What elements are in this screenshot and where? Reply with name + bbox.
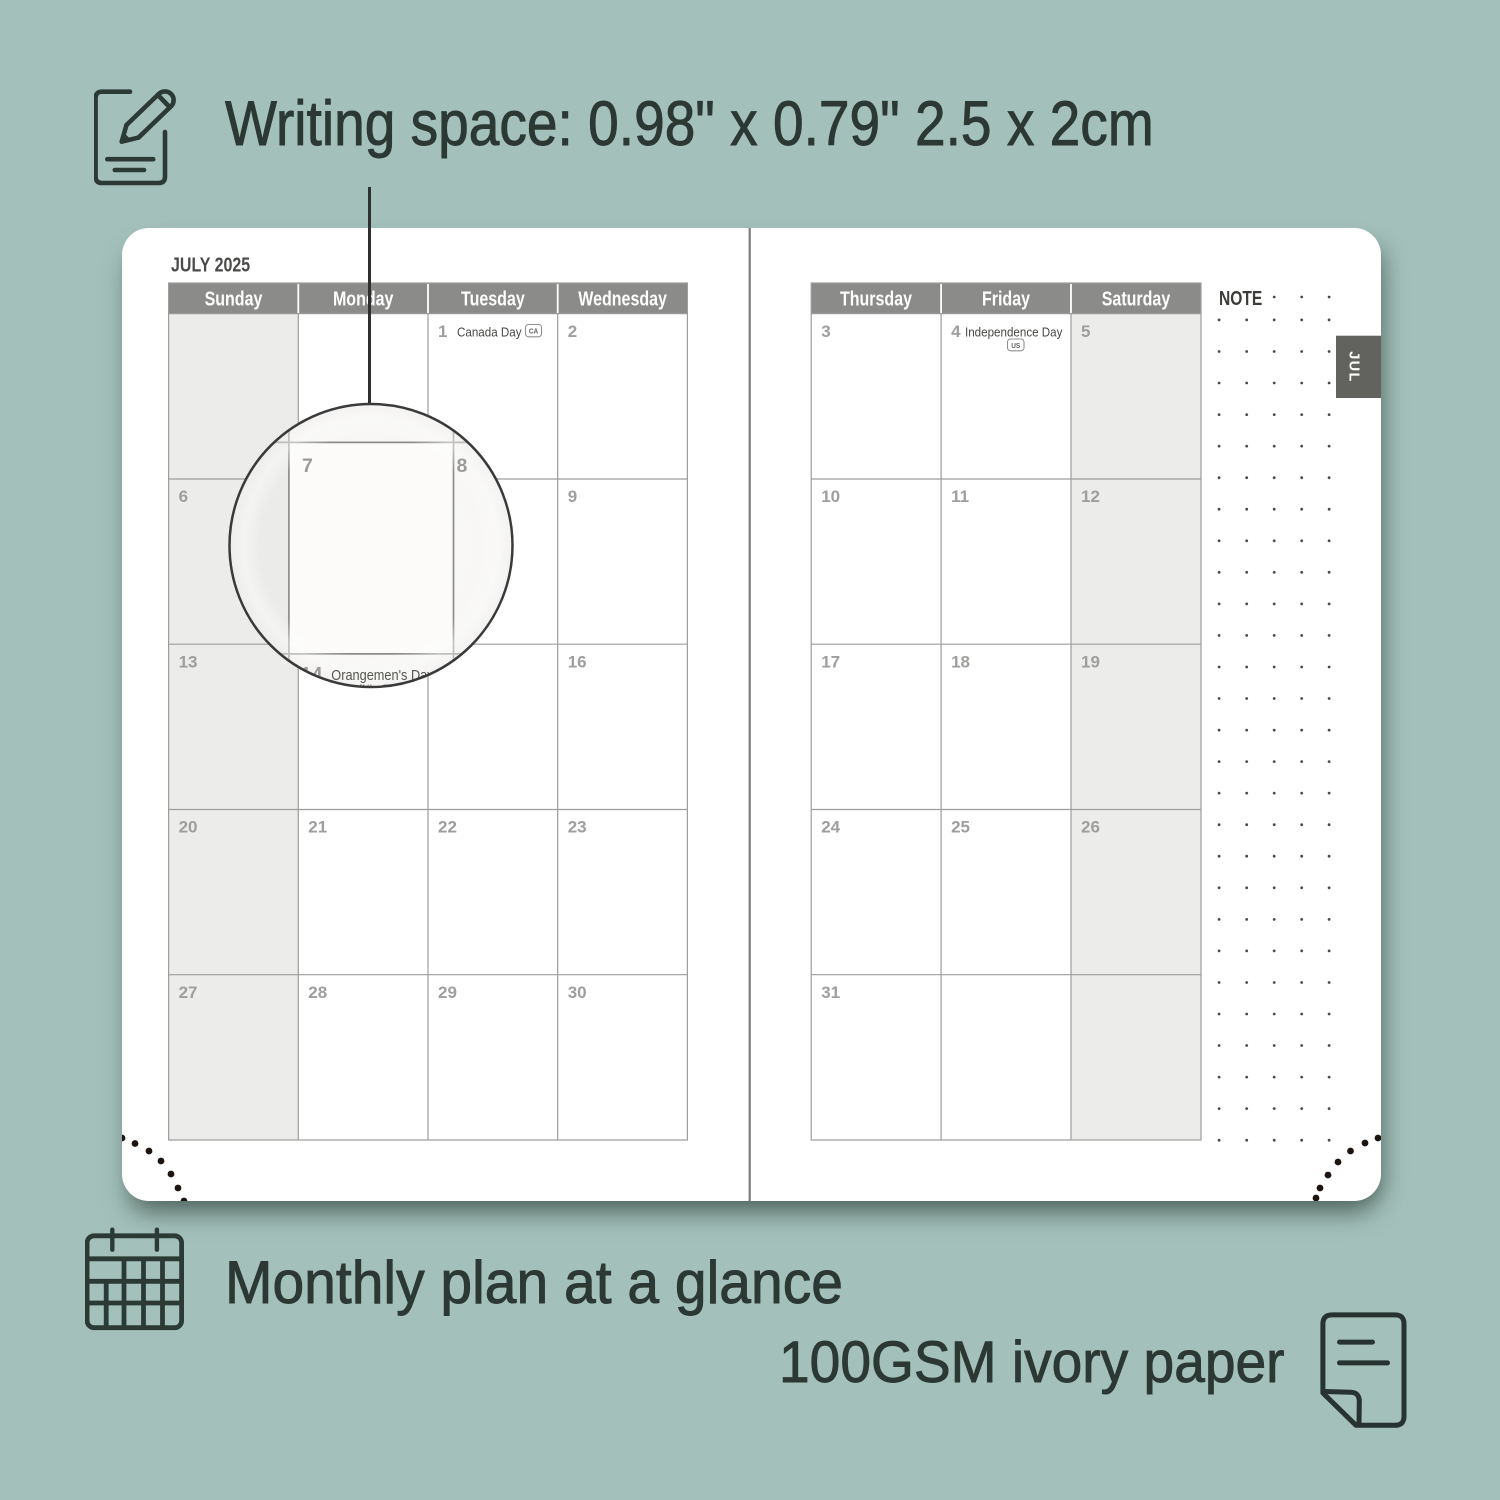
svg-text:Orangemen's Day: Orangemen's Day [331, 667, 433, 683]
svg-text:Wednesday: Wednesday [578, 288, 667, 310]
svg-text:25: 25 [951, 818, 970, 837]
svg-text:28: 28 [308, 983, 327, 1002]
svg-text:29: 29 [438, 983, 457, 1002]
svg-text:5: 5 [1081, 322, 1090, 341]
svg-text:Saturday: Saturday [1102, 288, 1170, 310]
svg-text:18: 18 [951, 652, 970, 671]
svg-text:CA: CA [529, 328, 538, 335]
svg-text:9: 9 [568, 487, 577, 506]
svg-text:16: 16 [568, 652, 587, 671]
svg-text:30: 30 [568, 983, 587, 1002]
svg-text:20: 20 [179, 818, 198, 837]
svg-text:JUL: JUL [1346, 351, 1362, 383]
svg-text:2: 2 [568, 322, 577, 341]
svg-text:19: 19 [1081, 652, 1100, 671]
svg-text:14: 14 [301, 663, 323, 687]
svg-text:10: 10 [821, 487, 840, 506]
svg-text:Independence Day: Independence Day [965, 325, 1063, 340]
svg-text:26: 26 [1081, 818, 1100, 837]
svg-text:7: 7 [302, 455, 313, 477]
svg-text:24: 24 [821, 818, 840, 837]
svg-text:6: 6 [179, 487, 188, 506]
svg-text:3: 3 [821, 322, 830, 341]
svg-text:8: 8 [457, 455, 468, 477]
svg-text:12: 12 [1081, 487, 1100, 506]
svg-text:11: 11 [951, 487, 969, 506]
svg-text:22: 22 [438, 818, 457, 837]
svg-text:Friday: Friday [982, 288, 1030, 310]
svg-text:31: 31 [821, 983, 840, 1002]
svg-text:NOTE: NOTE [1219, 287, 1262, 309]
svg-text:US: US [1011, 343, 1020, 350]
svg-text:4: 4 [951, 322, 961, 341]
svg-text:21: 21 [308, 818, 327, 837]
svg-text:Thursday: Thursday [840, 288, 912, 310]
svg-text:27: 27 [179, 983, 198, 1002]
svg-text:13: 13 [179, 652, 198, 671]
svg-text:23: 23 [568, 818, 587, 837]
svg-text:17: 17 [821, 652, 840, 671]
